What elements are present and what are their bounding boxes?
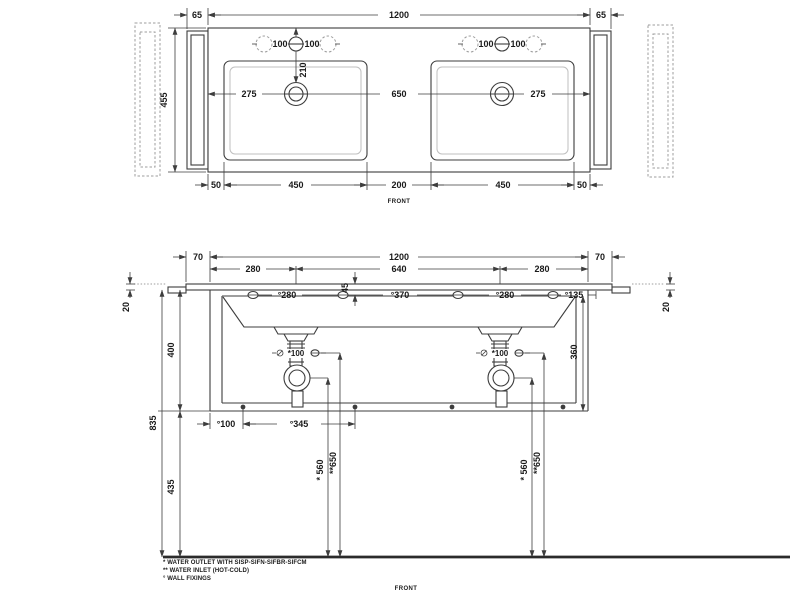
dim-label-560-right: * 560 — [519, 459, 529, 480]
dim-label-450-left: 450 — [288, 180, 303, 190]
dim-label-650: 650 — [391, 89, 406, 99]
dim-label-450-right: 450 — [495, 180, 510, 190]
dim-label-fixing-370: °370 — [391, 290, 410, 300]
dim-label-650-right: **650 — [532, 452, 542, 474]
dim-label-455: 455 — [159, 92, 169, 107]
bracket-tab-right — [612, 287, 630, 293]
dim-label-200: 200 — [391, 180, 406, 190]
dashed-side-panel-right — [648, 25, 673, 177]
dim-label-20-left: 20 — [121, 302, 131, 312]
dim-label-100-l2: 100 — [304, 39, 319, 49]
dim-label-45: 45 — [340, 283, 350, 293]
dim-label-360: 360 — [569, 344, 579, 359]
dim-label-400: 400 — [166, 342, 176, 357]
top-view-label: FRONT — [388, 199, 411, 205]
dim-label-65-right: 65 — [596, 10, 606, 20]
drain-right — [491, 83, 514, 106]
dim-label-640: 640 — [391, 264, 406, 274]
dashed-side-panel-left — [135, 23, 160, 176]
trap-outlet-pipe — [496, 391, 507, 407]
basin-bowl-profile — [223, 297, 575, 327]
dim-label-fixing-345: °345 — [290, 419, 309, 429]
dim-label-275-left: 275 — [241, 89, 256, 99]
dim-label-50-left: 50 — [211, 180, 221, 190]
dim-depth: 455 — [159, 28, 206, 172]
drawing-svg: 455 65 1200 65 210 275 — [0, 0, 800, 600]
supply-height-dims-left: * 560 **650 — [310, 353, 340, 557]
dim-label-20-right: 20 — [661, 302, 671, 312]
dim-label-100-r2: 100 — [510, 39, 525, 49]
note-water-outlet: * WATER OUTLET WITH SISP-SIFN-SIFBR-SIFC… — [163, 560, 307, 566]
dim-label-trap-100-left: *100 — [288, 349, 305, 358]
note-wall-fixings: ° WALL FIXINGS — [163, 576, 211, 582]
bottom-rail-fixings: °100 °345 — [197, 405, 565, 429]
trap-outlet-pipe — [292, 391, 303, 407]
drain-funnel-left — [274, 327, 318, 341]
dim-thickness-right: 20 — [661, 272, 675, 312]
top-view: 455 65 1200 65 210 275 — [135, 8, 673, 205]
side-bracket-right — [590, 31, 611, 169]
front-view: 20 20 — [121, 251, 790, 592]
side-bracket-left — [187, 31, 208, 169]
dim-label-100-r1: 100 — [478, 39, 493, 49]
dim-label-650-left: **650 — [328, 452, 338, 474]
bottle-trap-left: *100 — [272, 341, 326, 407]
dim-label-560-left: * 560 — [315, 459, 325, 480]
dim-label-1200-top: 1200 — [389, 10, 409, 20]
dim-row-front-top: 70 1200 70 280 640 280 — [173, 251, 625, 284]
dim-label-70-left: 70 — [193, 252, 203, 262]
dim-label-trap-100-right: *100 — [492, 349, 509, 358]
dim-column-left: 835 400 435 — [148, 290, 210, 557]
dim-label-fixing-280a: °280 — [278, 290, 297, 300]
dim-label-435: 435 — [166, 479, 176, 494]
dim-label-1200-front: 1200 — [389, 252, 409, 262]
cabinet-body — [210, 290, 588, 411]
front-view-label: FRONT — [395, 586, 418, 592]
dim-label-fixing-100: °100 — [217, 419, 236, 429]
dim-row-top: 65 1200 65 — [174, 8, 624, 29]
dim-label-275-right: 275 — [530, 89, 545, 99]
supply-height-dims-right: * 560 **650 — [514, 353, 544, 557]
dim-label-70-right: 70 — [595, 252, 605, 262]
drain-funnel-right — [478, 327, 522, 341]
dim-label-fixing-135: °135 — [565, 290, 584, 300]
dim-label-280-left: 280 — [245, 264, 260, 274]
note-water-inlet: ** WATER INLET (HOT-COLD) — [163, 568, 249, 574]
apron-fixings-row: °280 °370 °280 °135 — [248, 290, 596, 300]
dim-label-65-left: 65 — [192, 10, 202, 20]
drain-left — [285, 83, 308, 106]
dim-label-fixing-280b: °280 — [496, 290, 515, 300]
dim-label-100-l1: 100 — [272, 39, 287, 49]
dim-label-210: 210 — [298, 62, 308, 77]
bottle-trap-right: *100 — [476, 341, 530, 407]
dim-thickness-left: 20 — [121, 272, 135, 312]
dim-label-280-right: 280 — [534, 264, 549, 274]
dim-label-50-right: 50 — [577, 180, 587, 190]
countertop-outline — [208, 28, 590, 172]
footnotes: * WATER OUTLET WITH SISP-SIFN-SIFBR-SIFC… — [163, 560, 307, 582]
dim-label-835: 835 — [148, 415, 158, 430]
technical-drawing-sheet: 455 65 1200 65 210 275 — [0, 0, 800, 600]
bracket-tab-left — [168, 287, 186, 293]
